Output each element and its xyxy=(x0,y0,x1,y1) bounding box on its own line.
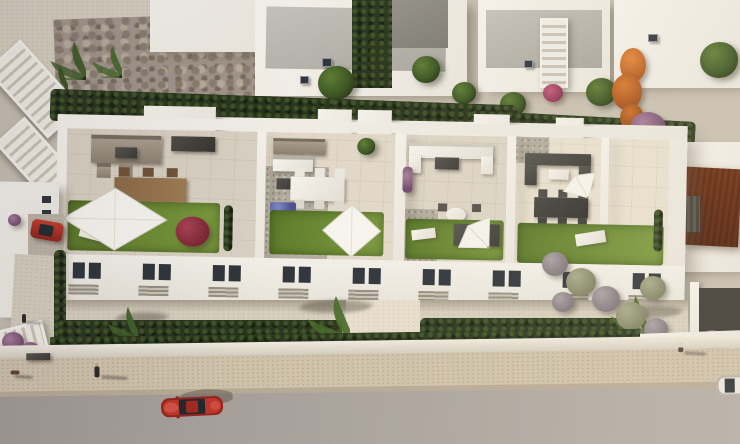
pedestrian-garden xyxy=(22,314,26,323)
facade-window-pair xyxy=(213,265,225,281)
tree xyxy=(700,42,738,78)
topiary-ball xyxy=(566,268,596,296)
pedestrian-sidewalk xyxy=(94,366,99,377)
red-car xyxy=(156,385,234,423)
background-house-1 xyxy=(150,0,265,52)
facade-window-pair xyxy=(143,264,155,280)
bg-window xyxy=(648,34,658,42)
street-band xyxy=(0,327,740,444)
white-car xyxy=(715,371,740,400)
palm-tree xyxy=(250,242,350,342)
white-lounge-side xyxy=(481,156,493,174)
terrace-planter xyxy=(653,209,663,251)
shade-sail xyxy=(61,186,168,252)
background-house-3-roof xyxy=(390,0,448,48)
potted-plant xyxy=(357,138,375,155)
facade-window-pair xyxy=(493,270,505,286)
dog xyxy=(10,370,19,374)
topiary-ball xyxy=(552,292,574,312)
ac-units xyxy=(276,178,291,189)
aerial-render-scene xyxy=(0,0,740,444)
parked-car-glass xyxy=(38,224,54,237)
topiary-ball xyxy=(640,276,666,300)
pink-flower-bush xyxy=(543,84,563,102)
street-bench xyxy=(26,353,50,360)
wall-bench xyxy=(273,138,325,155)
dark-dining-table xyxy=(534,197,588,218)
white-dining-chairs xyxy=(295,168,305,177)
facade-window-pair xyxy=(423,269,435,285)
topiary-ball xyxy=(592,286,620,312)
palm-tree xyxy=(66,268,138,340)
background-staircase-right xyxy=(540,18,568,88)
terrace-planter xyxy=(223,205,233,251)
louvre-vent xyxy=(138,286,168,297)
armchairs xyxy=(97,163,111,178)
potted-bougainvillea xyxy=(8,214,21,226)
bg-window xyxy=(524,60,533,68)
bg-window xyxy=(322,58,332,67)
topiary-ball xyxy=(542,252,568,276)
coffee-table xyxy=(115,147,137,158)
topiary-ball xyxy=(616,302,646,330)
dining-chairs xyxy=(119,167,130,176)
tree xyxy=(452,82,476,104)
hedge-corridor xyxy=(352,0,392,88)
lounge-coffee-table xyxy=(435,157,459,169)
barbecue-counter xyxy=(171,136,215,152)
facade-window-pair xyxy=(353,268,365,284)
outdoor-kitchen-counter xyxy=(273,155,313,172)
pedestrian-head xyxy=(95,363,98,366)
terrace-4-chairs xyxy=(538,189,547,197)
tree xyxy=(412,56,440,83)
pedestrian-right xyxy=(678,342,683,352)
left-building-windows xyxy=(42,196,51,203)
white-parasol xyxy=(421,179,490,248)
road xyxy=(0,386,740,444)
purple-planter xyxy=(402,167,412,193)
white-dining-table xyxy=(290,176,344,201)
louvre-vent xyxy=(208,287,238,298)
louvre-vent xyxy=(348,290,378,301)
tree xyxy=(318,66,354,100)
bg-window xyxy=(300,76,309,84)
pedestrian-shadow xyxy=(26,322,42,324)
